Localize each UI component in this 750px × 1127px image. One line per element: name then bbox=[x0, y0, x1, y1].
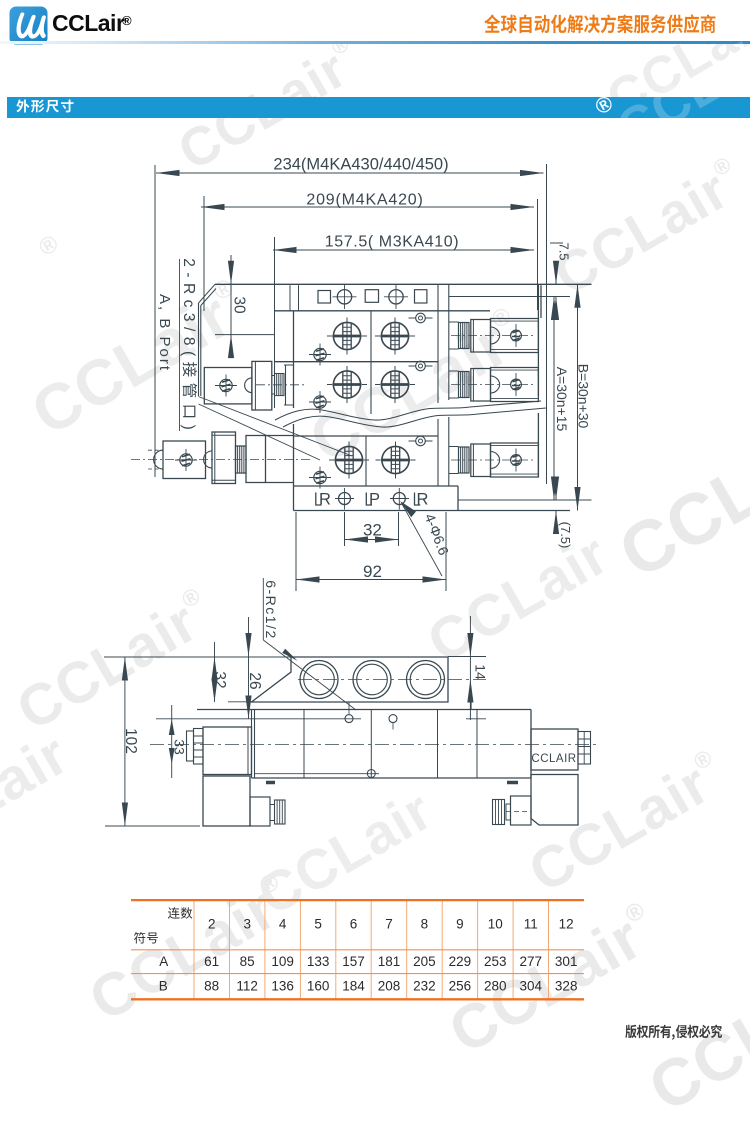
svg-text:7.5: 7.5 bbox=[557, 242, 572, 260]
svg-text:232: 232 bbox=[413, 979, 436, 994]
svg-text:328: 328 bbox=[555, 979, 578, 994]
svg-text:4-Φ6.6: 4-Φ6.6 bbox=[422, 511, 452, 557]
svg-text:209(M4KA420): 209(M4KA420) bbox=[306, 192, 423, 209]
svg-text:): ) bbox=[180, 425, 197, 430]
svg-text:301: 301 bbox=[555, 954, 578, 969]
svg-text:R: R bbox=[319, 491, 331, 509]
svg-text:280: 280 bbox=[484, 979, 507, 994]
svg-text:92: 92 bbox=[363, 562, 382, 581]
svg-text:7: 7 bbox=[385, 917, 393, 932]
svg-text:208: 208 bbox=[378, 979, 401, 994]
svg-text:14: 14 bbox=[473, 664, 489, 680]
svg-text:CCLAIR: CCLAIR bbox=[531, 753, 576, 765]
svg-text:12: 12 bbox=[559, 917, 574, 932]
svg-text:P: P bbox=[369, 491, 380, 509]
svg-text:157.5( M3KA410): 157.5( M3KA410) bbox=[325, 234, 459, 251]
svg-text:6: 6 bbox=[350, 917, 358, 932]
svg-text:4: 4 bbox=[279, 917, 287, 932]
svg-text:229: 229 bbox=[449, 954, 472, 969]
svg-text:30: 30 bbox=[231, 296, 248, 314]
svg-text:32: 32 bbox=[211, 671, 228, 688]
svg-text:B=30n+30: B=30n+30 bbox=[576, 364, 592, 429]
svg-text:10: 10 bbox=[488, 917, 503, 932]
svg-text:181: 181 bbox=[378, 954, 401, 969]
svg-text:A=30n+15: A=30n+15 bbox=[554, 367, 570, 432]
svg-text:88: 88 bbox=[204, 979, 219, 994]
svg-text:5: 5 bbox=[314, 917, 322, 932]
svg-text:102: 102 bbox=[122, 728, 139, 754]
svg-text:61: 61 bbox=[204, 954, 219, 969]
svg-text:26: 26 bbox=[246, 672, 263, 689]
svg-text:133: 133 bbox=[307, 954, 330, 969]
svg-text:11: 11 bbox=[524, 917, 538, 932]
svg-text:184: 184 bbox=[342, 979, 365, 994]
svg-text:A: A bbox=[159, 954, 168, 969]
svg-text:85: 85 bbox=[240, 954, 255, 969]
svg-text:9: 9 bbox=[456, 917, 464, 932]
svg-text:109: 109 bbox=[271, 954, 294, 969]
svg-text:3: 3 bbox=[243, 917, 251, 932]
svg-text:2-Rc3/8(: 2-Rc3/8( bbox=[180, 258, 197, 361]
svg-text:277: 277 bbox=[520, 954, 543, 969]
svg-text:6-Rc1/2: 6-Rc1/2 bbox=[263, 580, 279, 640]
svg-text:136: 136 bbox=[271, 979, 294, 994]
svg-text:234(M4KA430/440/450): 234(M4KA430/440/450) bbox=[273, 156, 448, 174]
svg-text:(7.5): (7.5) bbox=[558, 522, 573, 549]
svg-text:33: 33 bbox=[172, 739, 188, 755]
svg-text:A, B Port: A, B Port bbox=[156, 294, 173, 372]
svg-text:32: 32 bbox=[363, 521, 382, 540]
svg-text:256: 256 bbox=[449, 979, 472, 994]
svg-text:8: 8 bbox=[421, 917, 429, 932]
svg-text:R: R bbox=[417, 491, 429, 509]
svg-text:2: 2 bbox=[208, 917, 216, 932]
svg-text:304: 304 bbox=[520, 979, 543, 994]
svg-text:160: 160 bbox=[307, 979, 330, 994]
svg-text:157: 157 bbox=[342, 954, 365, 969]
svg-text:B: B bbox=[159, 979, 168, 994]
svg-text:253: 253 bbox=[484, 954, 507, 969]
svg-text:205: 205 bbox=[413, 954, 436, 969]
svg-text:112: 112 bbox=[236, 979, 258, 994]
